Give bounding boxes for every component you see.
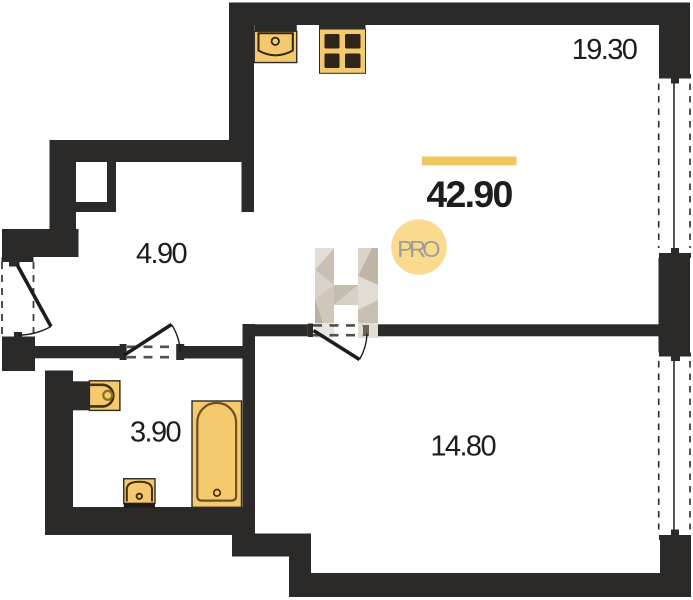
svg-text:42.90: 42.90 xyxy=(426,173,512,215)
svg-text:3.90: 3.90 xyxy=(130,417,181,449)
svg-text:14.80: 14.80 xyxy=(430,431,495,463)
svg-text:19.30: 19.30 xyxy=(572,34,637,66)
svg-text:4.90: 4.90 xyxy=(136,238,187,270)
svg-text:PRO: PRO xyxy=(397,236,440,262)
